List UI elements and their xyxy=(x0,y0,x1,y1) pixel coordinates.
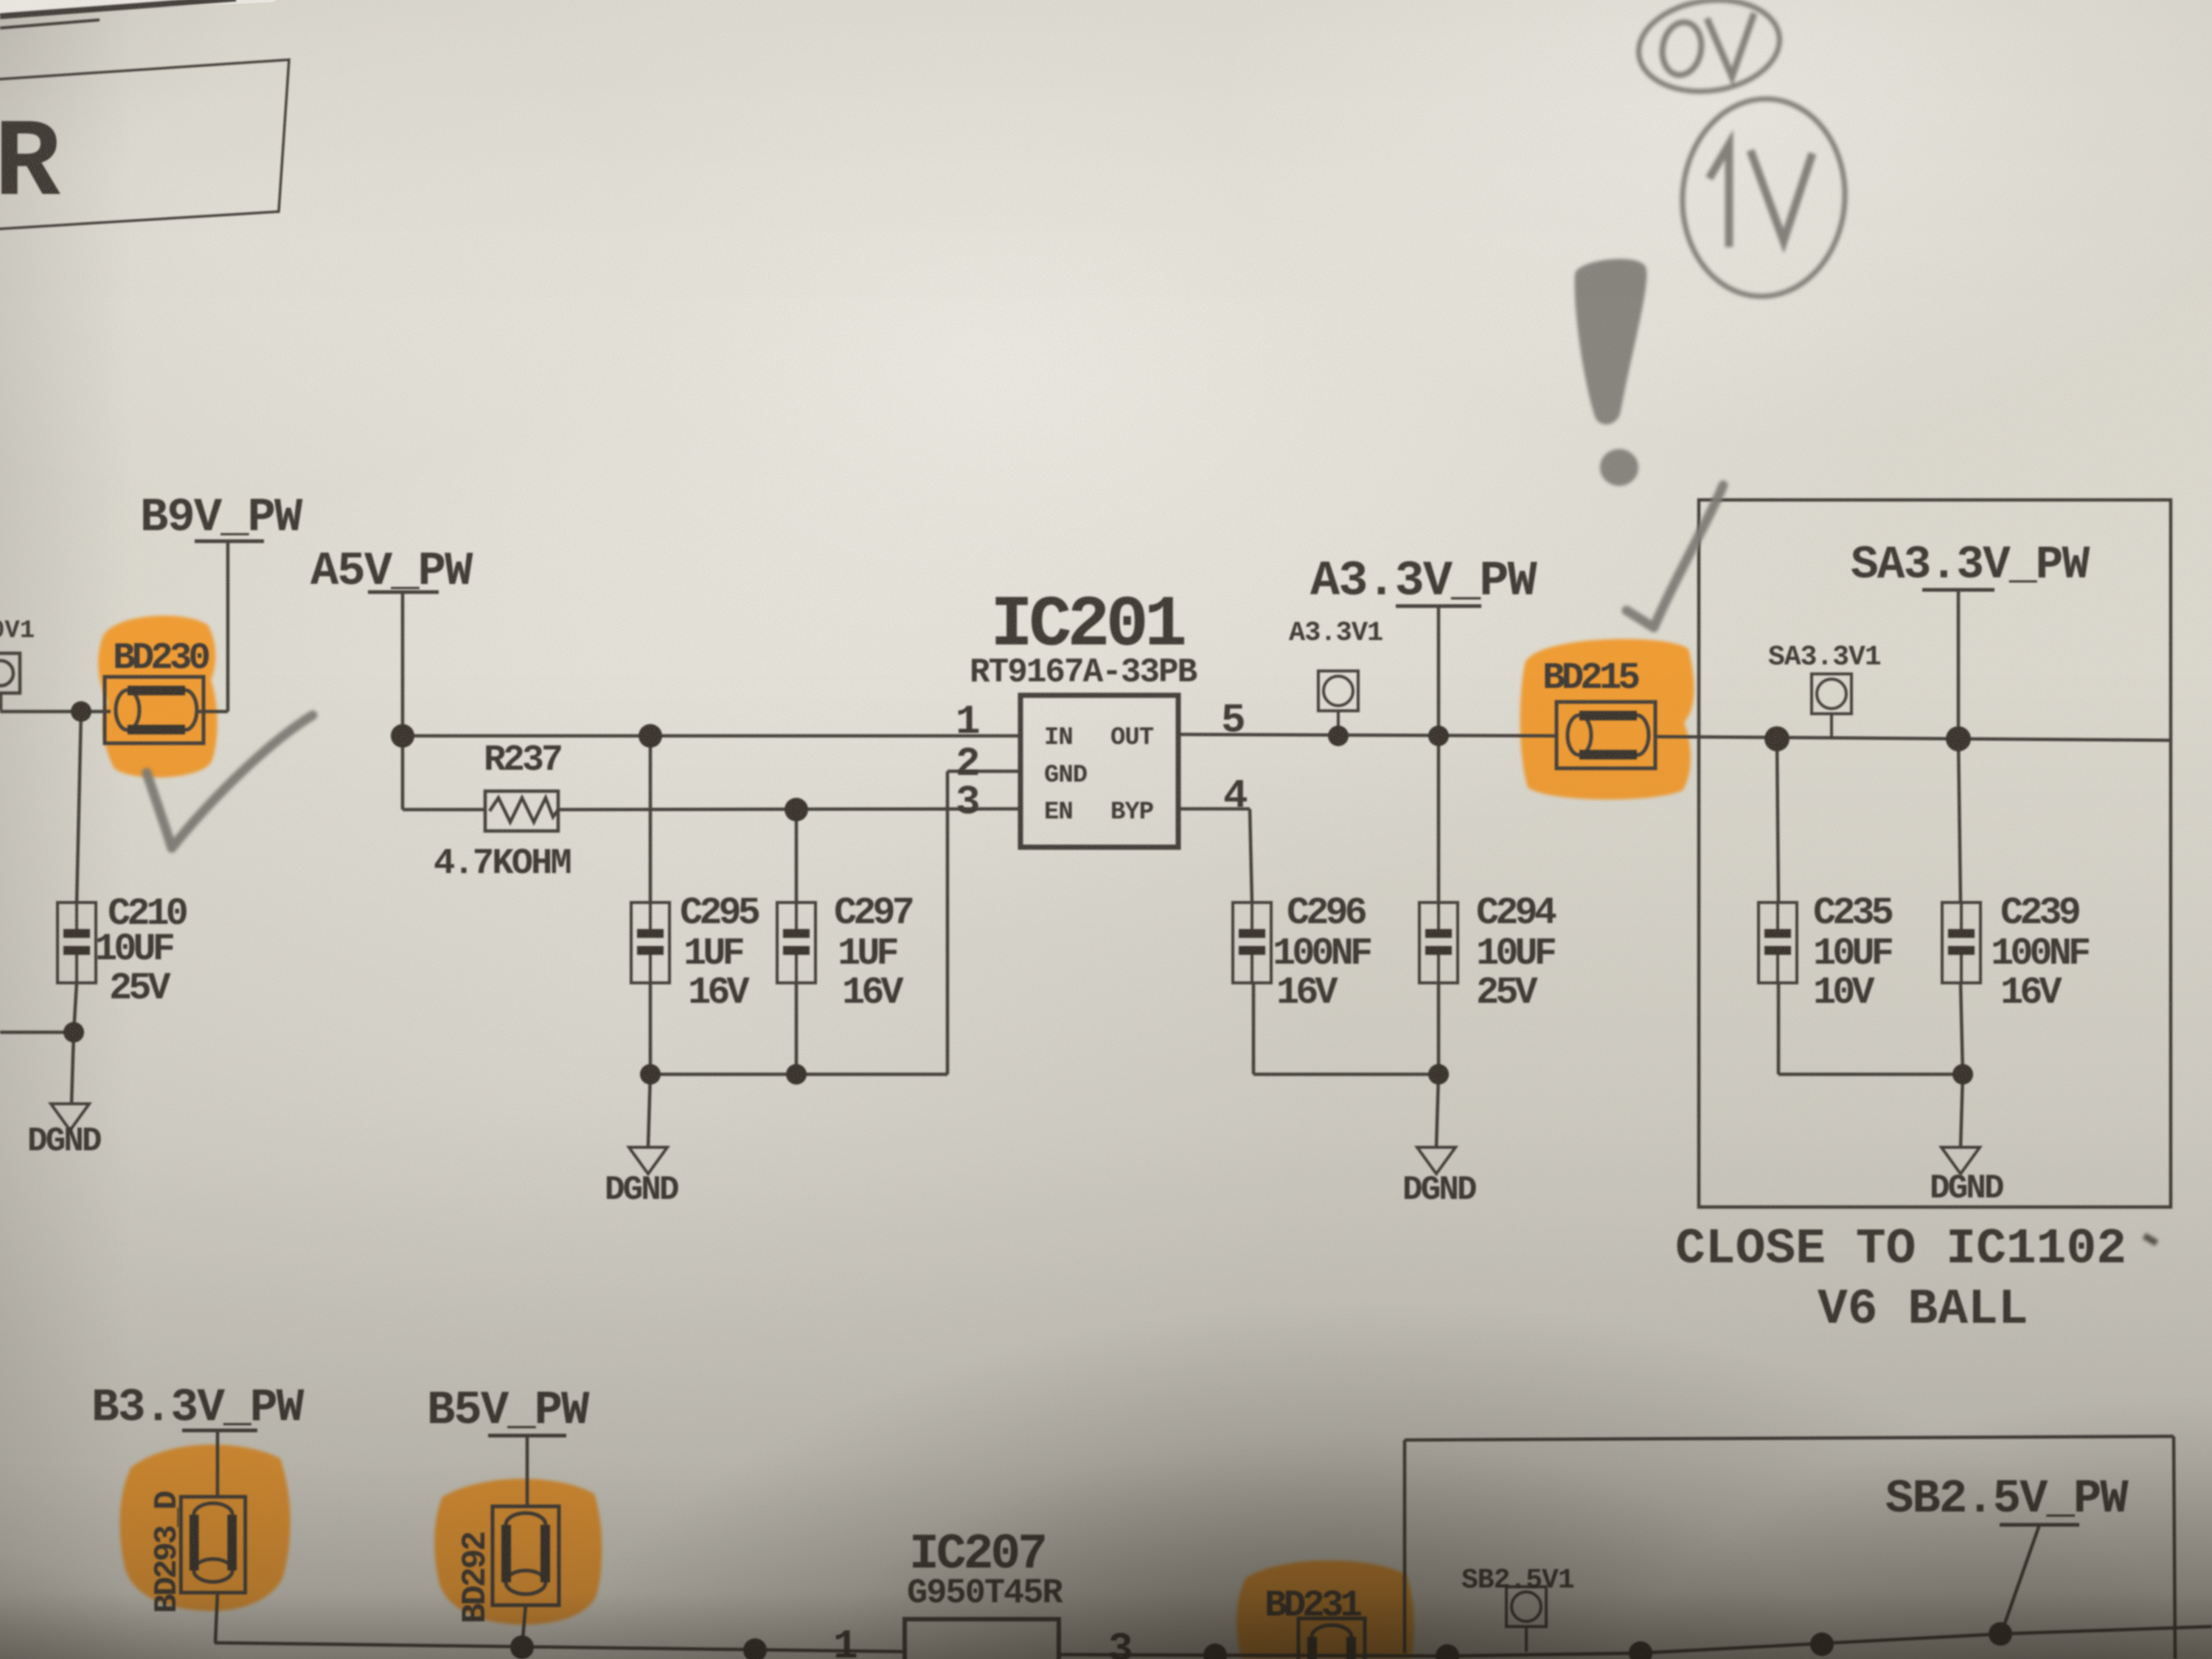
svg-text:A3.3V_PW: A3.3V_PW xyxy=(1310,554,1537,610)
svg-text:C297: C297 xyxy=(834,891,913,935)
svg-text:DGND: DGND xyxy=(1930,1169,2003,1208)
svg-text:B3.3V_PW: B3.3V_PW xyxy=(91,1382,305,1434)
svg-text:16V: 16V xyxy=(688,971,750,1015)
svg-text:IN: IN xyxy=(1044,724,1073,752)
svg-text:BD292: BD292 xyxy=(456,1533,495,1624)
svg-text:A5V_PW: A5V_PW xyxy=(310,546,473,599)
svg-text:4: 4 xyxy=(1223,773,1248,820)
svg-text:3: 3 xyxy=(956,779,981,826)
svg-text:1: 1 xyxy=(833,1623,858,1659)
svg-text:BD293_D: BD293_D xyxy=(149,1492,186,1613)
svg-text:16V: 16V xyxy=(2000,971,2062,1015)
svg-text:25V: 25V xyxy=(109,967,171,1010)
svg-text:C239: C239 xyxy=(2000,891,2080,935)
svg-text:IC201: IC201 xyxy=(990,585,1185,667)
svg-text:100NF: 100NF xyxy=(1991,932,2090,975)
svg-text:SB2.5V_PW: SB2.5V_PW xyxy=(1885,1473,2129,1526)
svg-text:DGND: DGND xyxy=(1402,1171,1476,1209)
svg-text:V6 BALL: V6 BALL xyxy=(1818,1281,2028,1338)
svg-text:EN: EN xyxy=(1044,799,1073,827)
svg-text:10V: 10V xyxy=(1813,971,1875,1015)
svg-text:DGND: DGND xyxy=(605,1171,678,1209)
svg-text:C296: C296 xyxy=(1287,891,1366,935)
svg-text:C210: C210 xyxy=(108,892,187,936)
svg-text:B9V_PW: B9V_PW xyxy=(140,492,303,545)
svg-text:3: 3 xyxy=(1108,1626,1133,1659)
svg-text:16V: 16V xyxy=(1276,971,1338,1015)
svg-text:SA3.3V1: SA3.3V1 xyxy=(1768,641,1881,673)
svg-text:BD231: BD231 xyxy=(1265,1585,1361,1627)
svg-text:R: R xyxy=(0,102,60,228)
svg-text:SA3.3V_PW: SA3.3V_PW xyxy=(1851,539,2090,591)
svg-text:CLOSE TO IC1102: CLOSE TO IC1102 xyxy=(1675,1221,2126,1278)
svg-text:2: 2 xyxy=(956,740,981,787)
svg-text:C294: C294 xyxy=(1476,891,1557,935)
svg-text:SB2.5V1: SB2.5V1 xyxy=(1461,1565,1574,1596)
svg-text:16V: 16V xyxy=(842,971,904,1015)
svg-text:100NF: 100NF xyxy=(1273,932,1371,975)
svg-text:5: 5 xyxy=(1221,697,1246,744)
svg-text:C295: C295 xyxy=(680,891,759,935)
svg-text:25V: 25V xyxy=(1476,971,1538,1015)
svg-text:10UF: 10UF xyxy=(94,928,174,971)
svg-text:1: 1 xyxy=(956,698,981,745)
svg-text:BD230: BD230 xyxy=(113,638,209,680)
svg-text:BD215: BD215 xyxy=(1543,658,1638,700)
svg-text:1UF: 1UF xyxy=(684,932,743,975)
svg-text:B5V_PW: B5V_PW xyxy=(427,1385,590,1438)
svg-text:0V1: 0V1 xyxy=(0,617,35,645)
svg-text:10UF: 10UF xyxy=(1476,932,1556,975)
svg-text:RT9167A-33PB: RT9167A-33PB xyxy=(970,653,1197,692)
svg-text:C235: C235 xyxy=(1813,891,1893,935)
svg-text:G950T45R: G950T45R xyxy=(907,1574,1063,1613)
svg-text:GND: GND xyxy=(1044,762,1088,790)
svg-text:4.7KOHM: 4.7KOHM xyxy=(434,843,571,884)
svg-text:R237: R237 xyxy=(484,740,561,782)
svg-text:BYP: BYP xyxy=(1110,799,1153,827)
svg-text:DGND: DGND xyxy=(27,1122,101,1161)
svg-text:1UF: 1UF xyxy=(838,932,897,975)
svg-text:A3.3V1: A3.3V1 xyxy=(1289,618,1382,649)
svg-text:10UF: 10UF xyxy=(1813,932,1893,975)
svg-text:OUT: OUT xyxy=(1110,724,1154,752)
svg-text:IC207: IC207 xyxy=(909,1526,1045,1583)
